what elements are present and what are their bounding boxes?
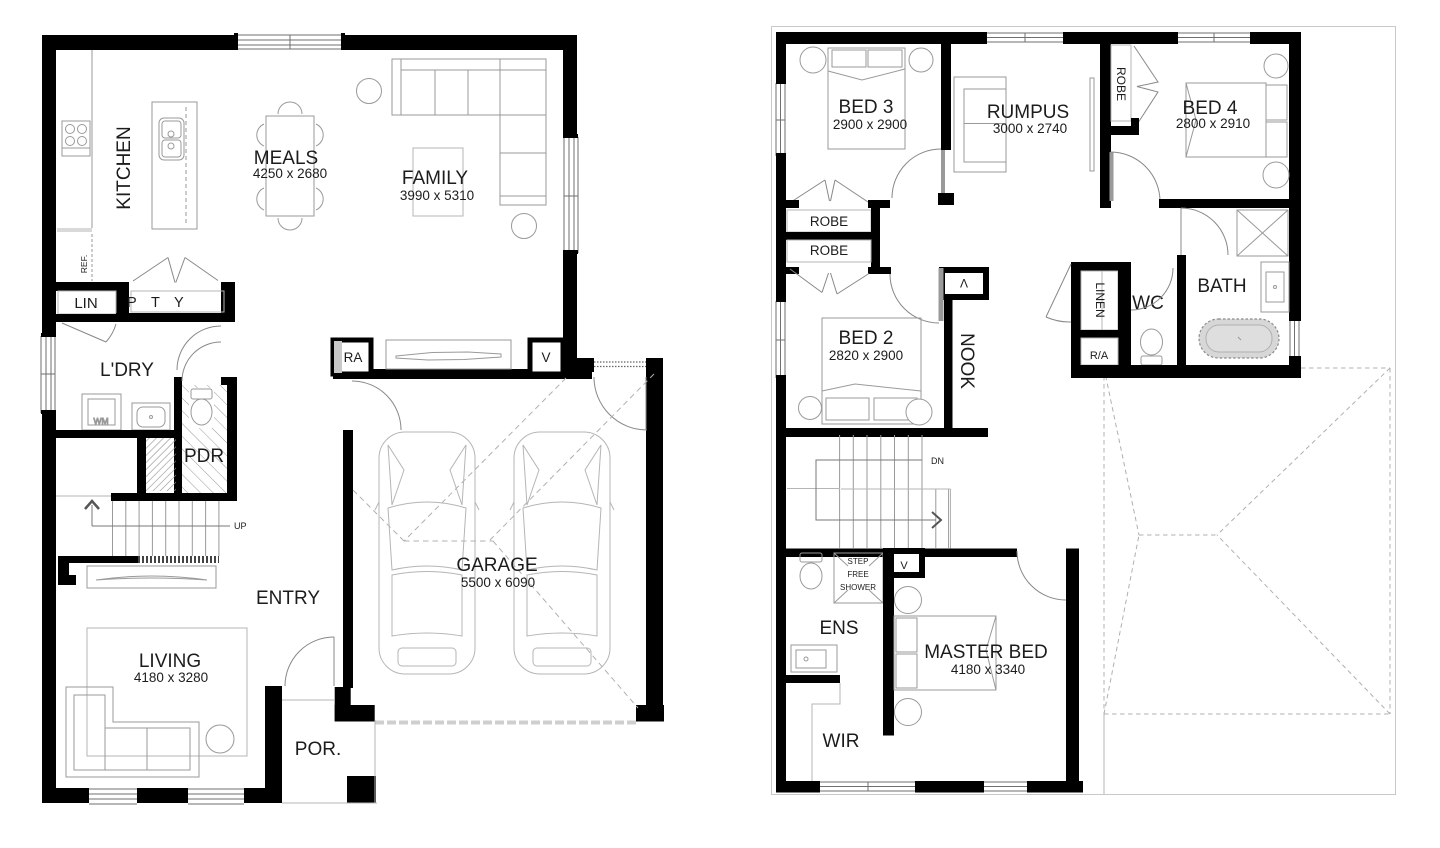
svg-text:2800 x 2910: 2800 x 2910: [1176, 116, 1250, 131]
svg-text:V: V: [960, 276, 968, 290]
svg-text:ENS: ENS: [819, 618, 858, 639]
svg-text:LINEN: LINEN: [1093, 282, 1107, 317]
svg-text:ENTRY: ENTRY: [256, 588, 320, 609]
svg-text:LIN: LIN: [74, 295, 97, 312]
svg-text:R/A: R/A: [1090, 350, 1109, 362]
svg-text:2900 x 2900: 2900 x 2900: [833, 117, 907, 132]
svg-text:3000 x 2740: 3000 x 2740: [993, 121, 1067, 136]
svg-text:ROBE: ROBE: [810, 214, 848, 229]
svg-text:4180 x 3340: 4180 x 3340: [951, 662, 1025, 677]
svg-text:WC: WC: [1132, 293, 1164, 314]
svg-text:UP: UP: [234, 521, 247, 531]
svg-text:FAMILY: FAMILY: [402, 168, 468, 189]
svg-text:SHOWER: SHOWER: [840, 583, 876, 592]
svg-text:T: T: [151, 295, 160, 311]
svg-text:MASTER BED: MASTER BED: [924, 642, 1048, 663]
svg-text:STEP: STEP: [848, 557, 869, 566]
svg-text:ROBE: ROBE: [810, 243, 848, 258]
svg-text:PDR: PDR: [184, 446, 224, 467]
svg-text:REF.: REF.: [79, 255, 89, 273]
svg-text:ROBE: ROBE: [1114, 67, 1128, 101]
svg-text:GARAGE: GARAGE: [456, 555, 537, 576]
svg-text:DN: DN: [931, 456, 944, 466]
svg-text:FREE: FREE: [847, 570, 868, 579]
svg-text:BATH: BATH: [1197, 276, 1246, 297]
svg-text:RA: RA: [344, 350, 363, 365]
svg-text:WIR: WIR: [823, 731, 860, 752]
svg-text:Y: Y: [174, 295, 184, 311]
svg-text:4250 x 2680: 4250 x 2680: [253, 166, 327, 181]
svg-text:RUMPUS: RUMPUS: [987, 102, 1069, 123]
svg-text:KITCHEN: KITCHEN: [114, 126, 135, 209]
svg-text:LIVING: LIVING: [139, 651, 201, 672]
svg-text:L'DRY: L'DRY: [100, 360, 154, 381]
svg-text:V: V: [900, 560, 908, 572]
svg-text:POR.: POR.: [295, 739, 341, 760]
svg-text:P: P: [127, 295, 137, 311]
svg-text:NOOK: NOOK: [956, 333, 977, 389]
svg-text:2820 x 2900: 2820 x 2900: [829, 348, 903, 363]
svg-text:V: V: [541, 350, 550, 365]
svg-text:5500 x 6090: 5500 x 6090: [461, 575, 535, 590]
svg-text:3990 x 5310: 3990 x 5310: [400, 188, 474, 203]
svg-text:BED 3: BED 3: [839, 97, 894, 118]
svg-text:BED 2: BED 2: [839, 328, 894, 349]
svg-text:WM: WM: [93, 416, 108, 426]
svg-text:4180 x 3280: 4180 x 3280: [134, 670, 208, 685]
